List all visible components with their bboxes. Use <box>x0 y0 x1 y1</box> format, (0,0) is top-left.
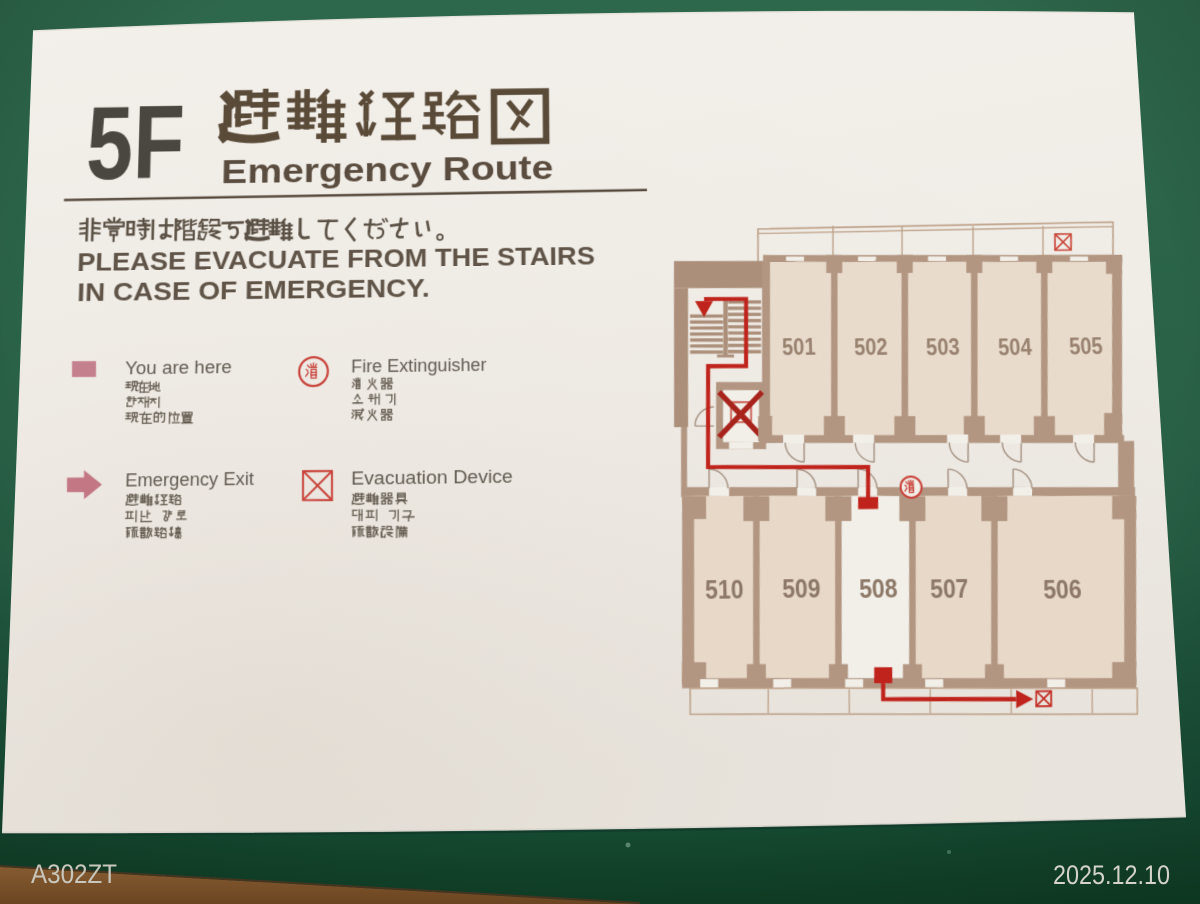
svg-text:504: 504 <box>997 334 1032 361</box>
svg-text:5F: 5F <box>85 85 186 202</box>
svg-text:2025.12.10: 2025.12.10 <box>1053 860 1170 890</box>
svg-text:502: 502 <box>854 334 889 361</box>
svg-text:Emergency Exit: Emergency Exit <box>125 468 254 491</box>
svg-text:509: 509 <box>782 575 821 604</box>
svg-text:508: 508 <box>859 575 898 604</box>
svg-text:You are here: You are here <box>125 356 232 378</box>
svg-text:510: 510 <box>705 575 744 604</box>
svg-text:Emergency Route: Emergency Route <box>221 149 553 190</box>
svg-text:PLEASE EVACUATE FROM THE STAIR: PLEASE EVACUATE FROM THE STAIRS <box>77 243 595 277</box>
svg-text:506: 506 <box>1042 575 1082 604</box>
svg-text:IN CASE OF EMERGENCY.: IN CASE OF EMERGENCY. <box>77 275 430 307</box>
svg-text:507: 507 <box>930 575 970 604</box>
svg-text:501: 501 <box>782 334 816 361</box>
svg-text:A302ZT: A302ZT <box>31 859 117 889</box>
svg-text:Evacuation Device: Evacuation Device <box>351 466 513 490</box>
svg-text:505: 505 <box>1068 334 1103 361</box>
svg-text:503: 503 <box>925 334 960 361</box>
svg-text:Fire Extinguisher: Fire Extinguisher <box>351 354 487 377</box>
